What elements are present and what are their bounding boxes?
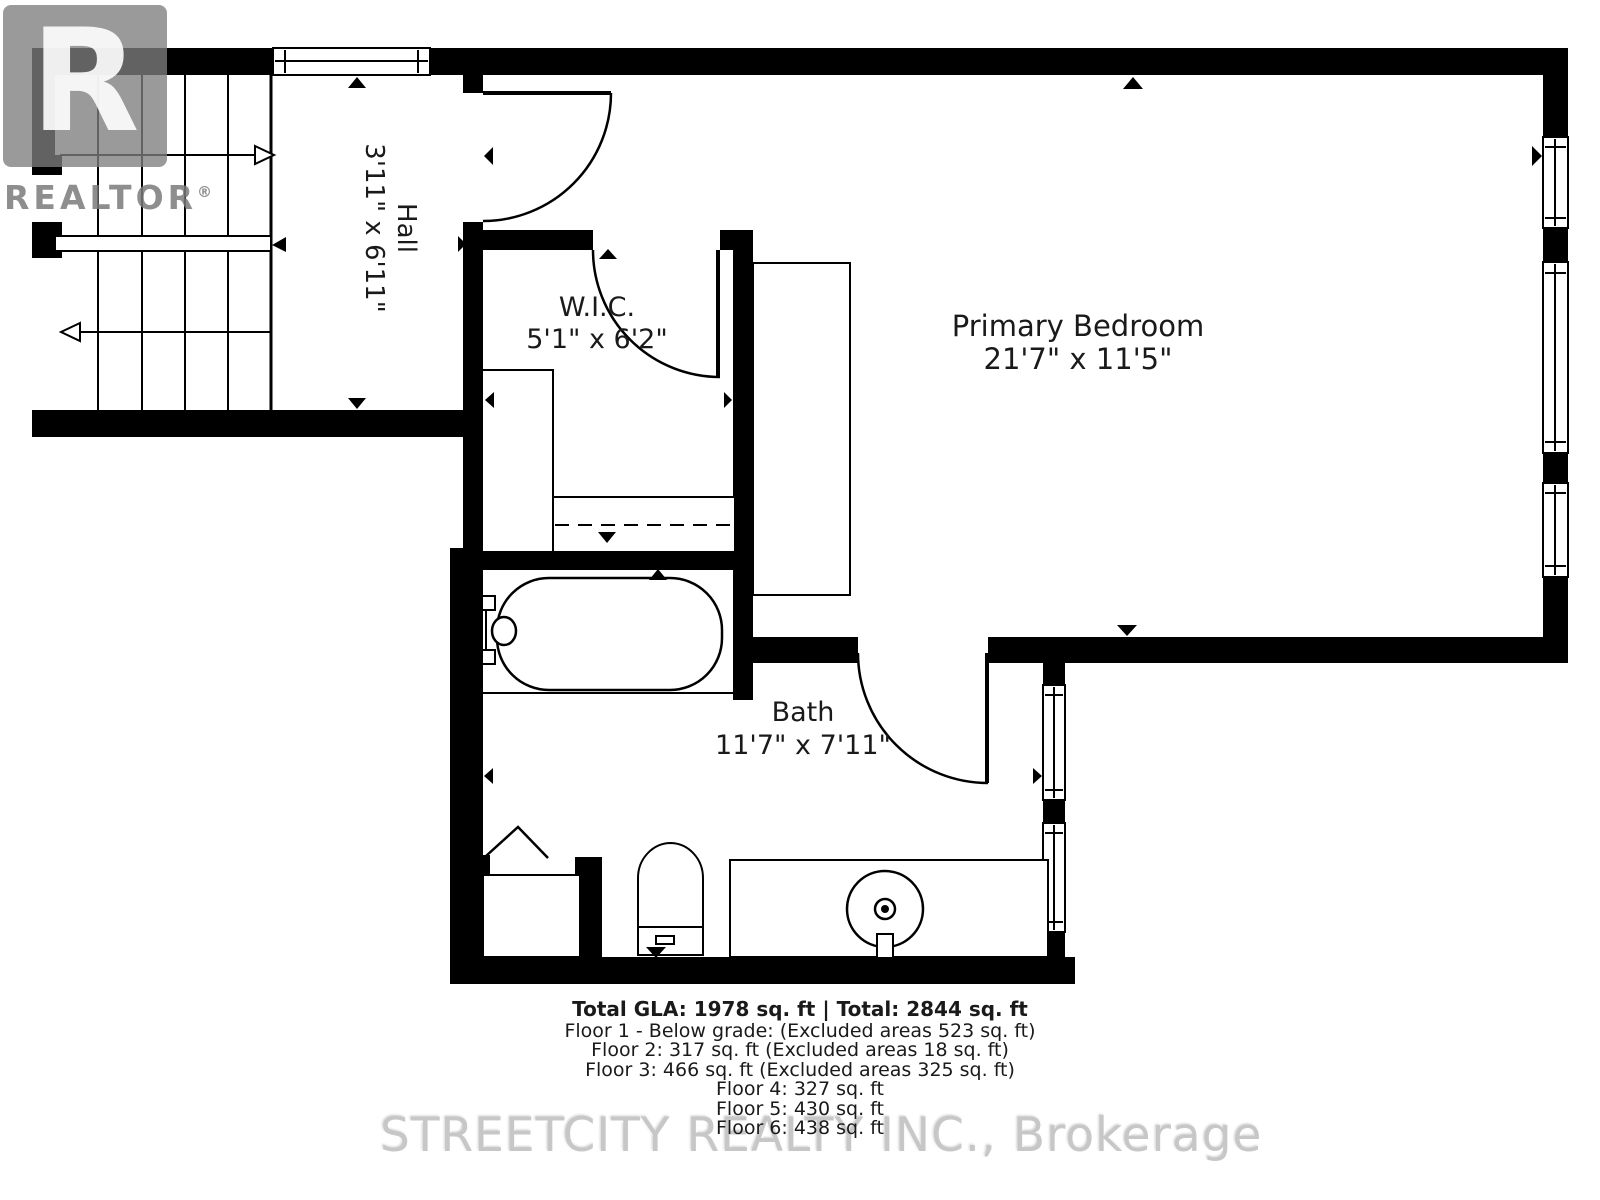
flush-button xyxy=(656,936,674,944)
realtor-wordmark: REALTOR® xyxy=(4,178,234,217)
floor-4-area: Floor 4: 327 sq. ft xyxy=(400,1080,1200,1100)
room-label-wic: W.I.C. 5'1" x 6'2" xyxy=(472,292,722,356)
stair-landing xyxy=(55,236,271,251)
primary-bedroom-name: Primary Bedroom xyxy=(878,310,1278,343)
shower xyxy=(483,827,580,957)
stair-down-arrow xyxy=(61,323,271,341)
bath-window-1 xyxy=(1043,685,1065,800)
room-label-hall: Hall 3'11" x 6'11" xyxy=(358,118,422,338)
vanity xyxy=(730,860,1048,958)
realtor-r-glyph: R xyxy=(30,11,139,153)
bedroom-window-1 xyxy=(1543,137,1568,228)
realtor-logo-icon: R xyxy=(3,5,167,167)
tub-faucet-handle xyxy=(482,650,495,664)
hall-dimensions: 3'11" x 6'11" xyxy=(358,118,390,338)
sink-faucet xyxy=(877,934,893,958)
bedroom-door xyxy=(483,91,611,221)
room-label-bath: Bath 11'7" x 7'11" xyxy=(653,696,953,762)
wic-name: W.I.C. xyxy=(472,292,722,324)
bathtub xyxy=(482,578,733,693)
area-summary: Total GLA: 1978 sq. ft | Total: 2844 sq.… xyxy=(400,1000,1200,1139)
floor-6-area: Floor 6: 438 sq. ft xyxy=(400,1119,1200,1139)
bath-name: Bath xyxy=(653,696,953,729)
bedroom-window-3 xyxy=(1543,483,1568,577)
shower-door-lines xyxy=(486,827,548,858)
primary-bedroom-dimensions: 21'7" x 11'5" xyxy=(878,343,1278,376)
total-gla: Total GLA: 1978 sq. ft | Total: 2844 sq.… xyxy=(400,1000,1200,1020)
tub-faucet-handle xyxy=(482,596,495,610)
floor-plan: Hall 3'11" x 6'11" W.I.C. 5'1" x 6'2" Pr… xyxy=(0,0,1600,1200)
hall-window xyxy=(273,48,430,75)
bedroom-closet-outline xyxy=(753,263,850,595)
registered-mark: ® xyxy=(197,183,212,201)
wic-closet-unit xyxy=(482,370,735,552)
toilet xyxy=(638,843,703,955)
floor-2-area: Floor 2: 317 sq. ft (Excluded areas 18 s… xyxy=(400,1041,1200,1061)
wic-dimensions: 5'1" x 6'2" xyxy=(472,324,722,356)
bath-dimensions: 11'7" x 7'11" xyxy=(653,729,953,762)
hall-name: Hall xyxy=(390,118,422,338)
bedroom-window-2 xyxy=(1543,262,1568,453)
room-label-primary-bedroom: Primary Bedroom 21'7" x 11'5" xyxy=(878,310,1278,376)
sink-drain-center xyxy=(881,905,889,913)
tub-spout xyxy=(492,617,516,645)
realtor-wordmark-text: REALTOR xyxy=(4,178,197,217)
